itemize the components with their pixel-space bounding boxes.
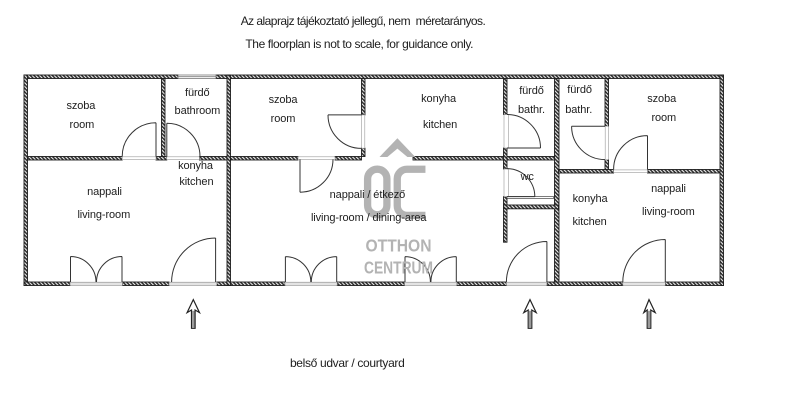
svg-text:OTTHON: OTTHON (366, 236, 432, 256)
svg-text:CENTRUM: CENTRUM (364, 257, 433, 277)
